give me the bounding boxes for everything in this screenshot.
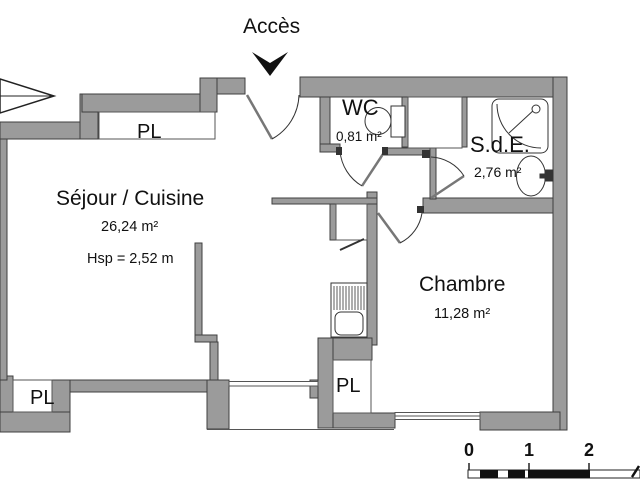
wall-niche-left — [330, 204, 336, 240]
wall-hall-chambre — [423, 198, 553, 213]
sejour-area-label: 26,24 m² — [101, 220, 158, 235]
entrance-door-swing — [272, 95, 299, 139]
wall-middle — [367, 192, 377, 345]
scale-label-2: 2 — [581, 441, 597, 459]
closet-bottom-left-label: PL — [30, 388, 54, 408]
closet-top-label: PL — [137, 122, 161, 142]
scale-label-1: 1 — [521, 441, 537, 459]
sejour-window — [229, 382, 318, 387]
chambre-door-swing — [400, 213, 422, 243]
wall-kitchen-partition — [195, 243, 202, 336]
scale-bar-seg3 — [528, 470, 590, 478]
scale-bar-seg1 — [480, 470, 498, 478]
access-arrow-icon — [252, 52, 288, 76]
access-label: Accès — [243, 16, 300, 37]
kitchen-sink-bowl — [335, 312, 363, 335]
niche-door-leaf — [340, 239, 364, 250]
ceiling-height-label: Hsp = 2,52 m — [87, 252, 174, 267]
wall-sde-left — [430, 147, 436, 199]
sde-jamb-top — [422, 150, 430, 158]
closet-hall-box — [408, 97, 462, 148]
chambre-jamb-right — [417, 206, 424, 213]
wall-closet-right — [462, 97, 467, 147]
wall-sejour-bottom-corner — [207, 380, 229, 429]
sde-area-label: 2,76 m² — [474, 165, 521, 179]
kitchen-sink-icon — [331, 283, 367, 337]
chambre-label: Chambre — [419, 274, 505, 295]
wall-top-left-conn — [200, 78, 217, 112]
wall-bottom-left-mass — [0, 412, 70, 432]
wall-plmid-left — [318, 338, 333, 428]
wall-kitchen-jog-v — [210, 342, 218, 380]
wall-hall-partition — [272, 198, 377, 204]
shower-head — [532, 105, 540, 113]
wall-kitchen-jog-h — [195, 335, 217, 342]
niche-box — [336, 204, 367, 240]
sde-label: S.d.E. — [470, 134, 530, 156]
wc-jamb-left — [336, 147, 342, 155]
wall-right — [553, 77, 567, 430]
scale-bar — [468, 463, 640, 478]
entrance-door-leaf — [247, 95, 272, 139]
toilet-tank — [391, 106, 405, 137]
washbasin-icon — [517, 156, 554, 196]
wc-door-leaf — [362, 151, 385, 186]
wall-bottom-left-right — [52, 380, 70, 412]
wall-left — [0, 139, 7, 380]
wc-door-swing — [340, 151, 362, 186]
wall-sejour-bottom — [52, 380, 207, 392]
wall-top-left-mid — [82, 94, 217, 112]
chambre-area-label: 11,28 m² — [434, 307, 490, 322]
closet-outlines — [13, 97, 462, 413]
floor-plan-drawing — [0, 0, 640, 480]
scale-bar-seg2 — [508, 470, 525, 478]
scale-label-0: 0 — [461, 441, 477, 459]
wall-left-lower — [0, 376, 13, 412]
floor-plan: Accès PL WC 0,81 m² S.d.E. 2,76 m² Séjou… — [0, 0, 640, 480]
wall-plmid-bottom — [333, 413, 395, 428]
wall-bottom-right — [480, 412, 560, 430]
washbasin-tap-spout — [540, 174, 546, 178]
wc-area-label: 0,81 m² — [336, 130, 382, 144]
wall-top-right — [300, 77, 567, 97]
wc-jamb-right — [382, 147, 388, 155]
wc-label: WC — [342, 97, 379, 119]
closet-middle-label: PL — [336, 376, 360, 396]
chambre-door-leaf — [378, 213, 400, 243]
sejour-label: Séjour / Cuisine — [56, 188, 204, 209]
